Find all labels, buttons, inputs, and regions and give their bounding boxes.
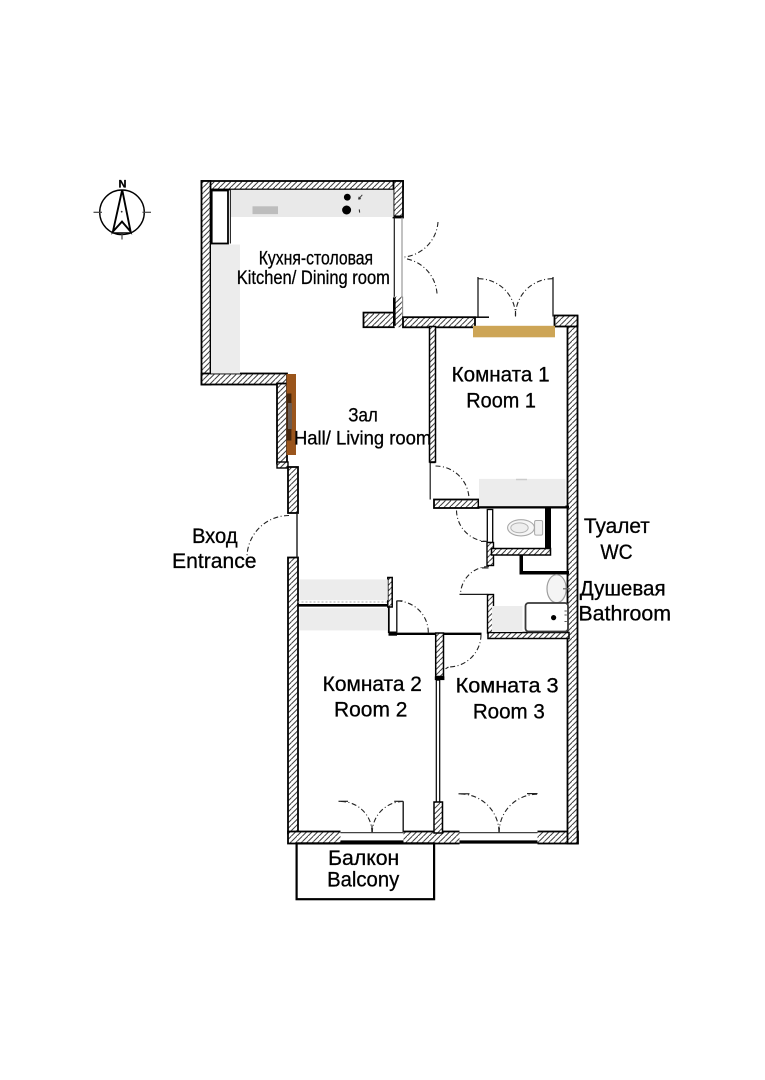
svg-text:Комната 3: Комната 3 <box>456 675 559 698</box>
svg-text:Room 1: Room 1 <box>466 390 536 413</box>
svg-text:N: N <box>119 179 127 191</box>
svg-text:Kitchen/ Dining room: Kitchen/ Dining room <box>237 267 390 289</box>
svg-text:Туалет: Туалет <box>584 515 650 538</box>
svg-text:Комната 2: Комната 2 <box>323 673 422 696</box>
svg-text:Room 3: Room 3 <box>473 701 545 724</box>
svg-text:Room 2: Room 2 <box>334 698 407 721</box>
svg-text:Balcony: Balcony <box>327 869 400 892</box>
svg-text:Душевая: Душевая <box>580 577 666 600</box>
svg-text:Entrance: Entrance <box>172 550 257 573</box>
svg-text:Hall/ Living room: Hall/ Living room <box>294 427 431 449</box>
svg-text:Балкон: Балкон <box>328 847 399 870</box>
svg-text:WC: WC <box>600 541 632 564</box>
svg-text:Bathroom: Bathroom <box>578 603 671 626</box>
svg-text:Вход: Вход <box>192 525 238 548</box>
svg-text:Комната 1: Комната 1 <box>452 363 550 386</box>
svg-text:Зал: Зал <box>348 405 378 427</box>
